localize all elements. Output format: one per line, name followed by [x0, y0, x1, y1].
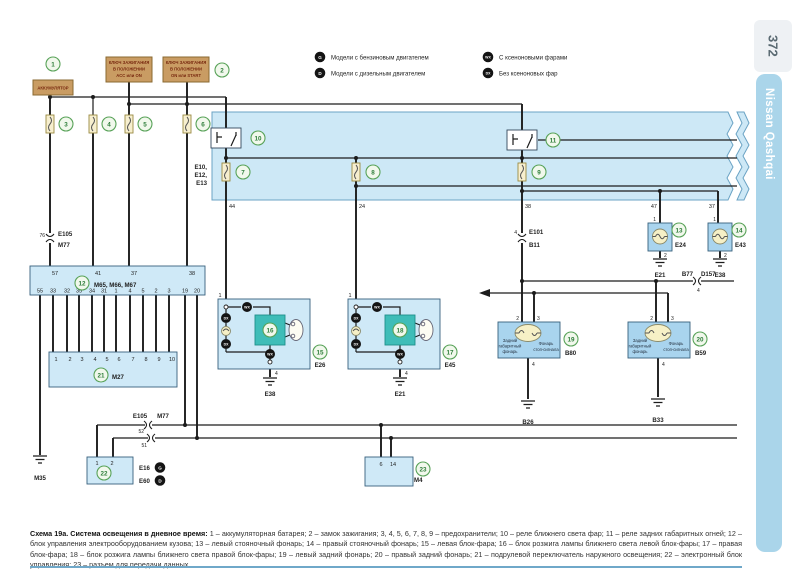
rear-l-label2b: стоп-сигнала [533, 347, 559, 352]
bcm-pin-19: 19 [182, 289, 188, 295]
halogen-bulb-icon [352, 327, 361, 336]
legend-no-xenon: Без ксеноновых фар [499, 71, 558, 78]
rear-r-code: B59 [695, 350, 707, 357]
hl-r-pin1: 1 [348, 293, 351, 299]
fuse-4-icon [89, 115, 97, 133]
wx-badge: WX [244, 306, 250, 310]
ecu-code-e16: E16 [139, 465, 150, 472]
rear-l-pin2: 2 [516, 316, 519, 322]
connector-e101-b11: 4 E101 B11 [514, 229, 544, 249]
rear-r-label2b: стоп-сигнала [663, 347, 689, 352]
ground-b33-label: B33 [652, 417, 664, 424]
dx-badge: DX [354, 343, 360, 347]
num-3: 3 [64, 121, 68, 128]
legend-diesel: Модели с дизельным двигателем [331, 71, 425, 78]
ign-acc-line3: ACC или ON [116, 73, 142, 78]
code-m77: M77 [58, 242, 70, 249]
dlc-box: 6 14 M4 [365, 457, 423, 486]
bcm-pin-41: 41 [95, 271, 101, 277]
bcm-pin-55: 55 [37, 289, 43, 295]
rear-bulb-icon [515, 325, 541, 342]
conn-e10: E10, [194, 164, 207, 171]
dx-badge: DX [224, 317, 230, 321]
bcm-pin-1: 1 [114, 289, 117, 295]
legend-xenon: С ксеноновыми фарами [499, 55, 567, 62]
xenon-badge-letter: WX [485, 56, 491, 60]
battery: АККУМУЛЯТОР [33, 80, 73, 95]
dx-badge: DX [224, 343, 230, 347]
halogen-bulb-icon [222, 327, 231, 336]
num-14: 14 [735, 227, 743, 234]
ecu-pin-1: 1 [95, 461, 98, 467]
bcm-pin-34: 34 [89, 289, 95, 295]
fuse-7-icon [222, 163, 230, 181]
ground-e21-icon [393, 378, 407, 385]
no-xenon-badge-letter: DX [486, 72, 492, 76]
rear-r-pin2: 2 [650, 316, 653, 322]
pin-51: 51 [141, 443, 147, 449]
brand-name: Nissan Qashqai [763, 88, 775, 180]
code-b77: B77 [682, 271, 694, 278]
hl-r-code: E45 [445, 362, 456, 369]
ground-e21b-icon [653, 259, 667, 266]
ign-acc-line1: КЛЮЧ ЗАЖИГАНИЯ [109, 60, 149, 65]
m27-pin-8: 8 [144, 357, 147, 363]
pin-52: 52 [138, 429, 144, 435]
num-9: 9 [537, 169, 541, 176]
bcm-pin-37: 37 [131, 271, 137, 277]
code-b11: B11 [529, 242, 540, 249]
m27-pin-4: 4 [93, 357, 96, 363]
right-headlight-box: 1 WX DX DX WX 4 [348, 293, 440, 377]
rear-l-pin4: 4 [532, 362, 535, 368]
rear-l-label1: Задний [503, 338, 518, 343]
m27-pin-2: 2 [68, 357, 71, 363]
m27-code: M27 [112, 374, 124, 381]
battery-label: АККУМУЛЯТОР [37, 86, 68, 91]
num-11: 11 [550, 137, 557, 144]
bcm-pin-57: 57 [52, 271, 58, 277]
bcm-pin-4: 4 [128, 289, 131, 295]
m27-pin-9: 9 [157, 357, 160, 363]
code-e105: E105 [58, 231, 73, 238]
bcm-pin-31: 31 [101, 289, 107, 295]
m27-pin-7: 7 [131, 357, 134, 363]
fuse-5-icon [125, 115, 133, 133]
ground-e38-icon [263, 378, 277, 385]
manual-page: АККУМУЛЯТОР КЛЮЧ ЗАЖИГАНИЯ В ПОЛОЖЕНИИ A… [0, 0, 800, 588]
bcm-pin-32: 32 [64, 289, 70, 295]
dlc-code: M4 [414, 477, 423, 484]
rear-l-code: B80 [565, 350, 577, 357]
bcm-pin-20: 20 [194, 289, 200, 295]
legend: G Модели с бензиновым двигателем D Модел… [315, 52, 568, 79]
park-r-code: E43 [735, 242, 746, 249]
num-20: 20 [696, 336, 704, 343]
ground-e21b-label: E21 [655, 272, 666, 279]
num-16: 16 [266, 327, 274, 334]
dlc-pin-6: 6 [379, 462, 382, 468]
num-18: 18 [396, 327, 404, 334]
legend-gasoline: Модели с бензиновым двигателем [331, 55, 429, 62]
num-22: 22 [100, 470, 108, 477]
xenon-bulb-icon [419, 320, 433, 341]
fuse-9-icon [518, 163, 526, 181]
rear-r-label1b: габаритный [629, 344, 652, 349]
ground-b26-label: B26 [522, 419, 534, 426]
pin-4: 4 [514, 230, 517, 236]
code-e101: E101 [529, 229, 544, 236]
rear-r-label1c: фонарь [633, 349, 649, 354]
ignition-acc-box: КЛЮЧ ЗАЖИГАНИЯ В ПОЛОЖЕНИИ ACC или ON [106, 57, 152, 82]
num-17: 17 [446, 349, 454, 356]
pin-37: 37 [709, 204, 715, 210]
rear-r-pin3: 3 [671, 316, 674, 322]
pin-38: 38 [525, 204, 531, 210]
num-2: 2 [220, 67, 224, 74]
num-12: 12 [78, 280, 86, 287]
fuse-3-icon [46, 115, 54, 133]
ecu-pin-2: 2 [110, 461, 113, 467]
rear-l-label1c: фонарь [503, 349, 519, 354]
num-15: 15 [316, 349, 324, 356]
connector-e105-m77-bottom: E105 M77 52 51 [133, 413, 170, 449]
torn-edge-sliver [736, 112, 749, 200]
wiring-diagram: АККУМУЛЯТОР КЛЮЧ ЗАЖИГАНИЯ В ПОЛОЖЕНИИ A… [0, 0, 800, 588]
hl-l-pin4: 4 [275, 371, 278, 377]
bcm-pin-5: 5 [141, 289, 144, 295]
relay-box-pins: 44 24 38 47 37 [229, 204, 715, 210]
rear-l-label2: Фонарь [539, 341, 554, 346]
ground-m35-icon [33, 456, 47, 463]
page-number: 372 [766, 35, 781, 57]
park-l-pin2: 2 [664, 253, 667, 259]
ign-acc-line2: В ПОЛОЖЕНИИ [113, 67, 145, 72]
code-e105b: E105 [133, 413, 148, 420]
conn-e13: E13 [196, 180, 207, 187]
connector-e105-m77-icon [46, 234, 54, 242]
num-1: 1 [51, 61, 55, 68]
pin-4b: 4 [697, 288, 700, 294]
m27-pin-10: 10 [169, 357, 175, 363]
ecu-code-e60: E60 [139, 478, 150, 485]
ign-on-line3: ON или START [171, 73, 202, 78]
rear-bulb-icon [645, 325, 671, 342]
rear-r-label1: Задний [633, 338, 648, 343]
num-7: 7 [241, 169, 245, 176]
connector-e101-b11-icon [518, 234, 526, 242]
wx-badge: WX [374, 306, 380, 310]
bcm-pin-2: 2 [154, 289, 157, 295]
relay-10 [211, 128, 241, 148]
pin-76: 76 [39, 233, 45, 239]
offpage-arrow [479, 289, 490, 297]
num-8: 8 [371, 169, 375, 176]
ground-b26-icon [521, 401, 535, 408]
connector-e105-m77-top: 76 E105 M77 [39, 231, 72, 249]
num-10: 10 [254, 135, 262, 142]
num-5: 5 [143, 121, 147, 128]
num-23: 23 [419, 466, 427, 473]
m27-pin-6: 6 [117, 357, 120, 363]
wx-badge: WX [397, 353, 403, 357]
scheme-caption: Схема 19а. Система освещения в дневное в… [30, 529, 742, 571]
dx-badge: DX [354, 317, 360, 321]
rear-l-pin3: 3 [537, 316, 540, 322]
num-13: 13 [675, 227, 683, 234]
left-headlight-box: 1 WX DX DX WX 4 [218, 293, 310, 377]
num-6: 6 [201, 121, 205, 128]
stalk-switch-box: 1 2 3 4 5 6 7 8 9 10 M27 [49, 352, 177, 387]
code-m77b: M77 [157, 413, 169, 420]
pin-47: 47 [651, 204, 657, 210]
m27-pin-5: 5 [105, 357, 108, 363]
pin-24: 24 [359, 204, 365, 210]
brand-sidebar: Nissan Qashqai [756, 74, 782, 552]
g-badge: G [158, 466, 162, 471]
num-4: 4 [107, 121, 111, 128]
caption-rule [30, 566, 742, 568]
m27-pin-1: 1 [54, 357, 57, 363]
dlc-pin-14: 14 [390, 462, 396, 468]
ign-on-line2: В ПОЛОЖЕНИИ [170, 67, 202, 72]
connector-b77-d157-icon [693, 277, 701, 285]
ignition-on-box: КЛЮЧ ЗАЖИГАНИЯ В ПОЛОЖЕНИИ ON или START [163, 57, 209, 82]
num-21: 21 [97, 372, 105, 379]
gasoline-badge-letter: G [318, 55, 322, 60]
caption-title: Схема 19а. Система освещения в дневное в… [30, 529, 208, 538]
bcm-pin-38: 38 [189, 271, 195, 277]
ground-m35-label: M35 [34, 475, 46, 482]
park-r-pin1: 1 [713, 217, 716, 223]
m27-pin-3: 3 [80, 357, 83, 363]
bcm-box: 57 41 37 38 M65, M66, M67 55 33 32 35 34… [30, 266, 205, 295]
pin-44: 44 [229, 204, 235, 210]
fuse-6-icon [183, 115, 191, 133]
page-number-tab: 372 [754, 20, 792, 72]
bcm-pin-33: 33 [50, 289, 56, 295]
ground-e38-label: E38 [265, 391, 276, 398]
ground-e38b-label: E38 [715, 272, 726, 279]
num-19: 19 [567, 336, 575, 343]
parking-bulb-icon [713, 229, 728, 244]
rear-r-label2: Фонарь [669, 341, 684, 346]
ign-on-line1: КЛЮЧ ЗАЖИГАНИЯ [166, 60, 206, 65]
relay-box-connector-labels: E10, E12, E13 [194, 164, 207, 187]
park-r-pin2: 2 [724, 253, 727, 259]
hl-l-pin1: 1 [218, 293, 221, 299]
ground-e21-label: E21 [395, 391, 406, 398]
conn-e12: E12, [194, 172, 207, 179]
ground-e38b-icon [713, 259, 727, 266]
hl-r-pin4: 4 [405, 371, 408, 377]
hl-l-code: E26 [315, 362, 326, 369]
rear-r-pin4: 4 [662, 362, 665, 368]
bcm-pin-3: 3 [167, 289, 170, 295]
wx-badge: WX [267, 353, 273, 357]
parking-bulb-icon [653, 229, 668, 244]
park-l-pin1: 1 [653, 217, 656, 223]
rear-l-label1b: габаритный [499, 344, 522, 349]
park-l-code: E24 [675, 242, 686, 249]
fuse-8-icon [352, 163, 360, 181]
ground-b33-icon [651, 399, 665, 406]
xenon-bulb-icon [289, 320, 303, 341]
relay-11 [507, 130, 537, 150]
relay-fuse-box [212, 112, 749, 200]
